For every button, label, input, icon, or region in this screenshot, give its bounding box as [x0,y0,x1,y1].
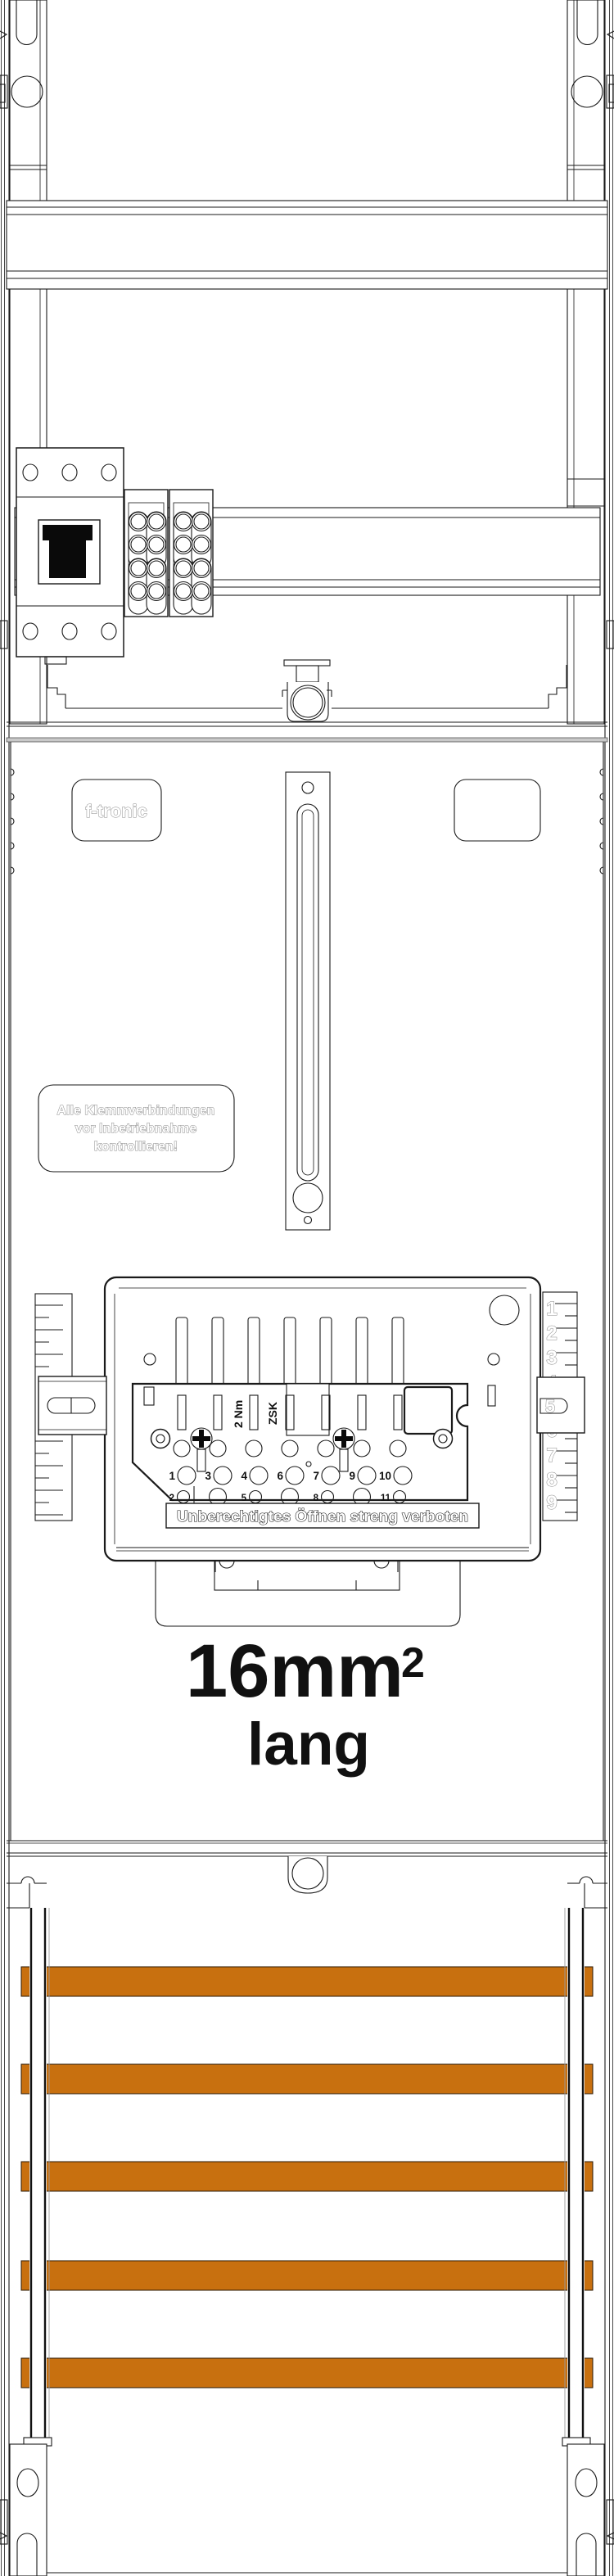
svg-text:7: 7 [313,1470,319,1482]
size-main-text: 16mm [186,1629,404,1713]
svg-text:3: 3 [205,1470,211,1482]
svg-text:8: 8 [314,1494,319,1503]
hanger-stud [284,660,330,666]
breaker-handle-icon [43,525,93,578]
center-window [287,1384,329,1435]
empty-badge [454,780,540,841]
svg-text:5: 5 [242,1494,247,1503]
svg-text:10: 10 [379,1470,391,1482]
right-divider-bracket [567,1877,607,1908]
bottom-divider [7,1841,607,1908]
terminal-block-left [124,490,168,617]
meter-cabinet-diagram: f-tronic Alle Klemmverbindungen vor Inbe… [0,0,614,2576]
bracket-number: 5 [545,1396,555,1417]
brand-logo: f-tronic [85,801,147,821]
seal-notice-text: Unberechtigtes Öffnen streng verboten [177,1508,468,1525]
left-din-bracket [38,1376,106,1435]
top-section-bottom-tray [7,660,607,742]
side-box [404,1387,452,1434]
mount-screw-icon [434,1430,453,1448]
busbar-3 [21,2162,593,2191]
top-right-mounting-rail [566,0,606,724]
warning-line-3: kontrollieren! [94,1140,178,1154]
middle-panel: f-tronic Alle Klemmverbindungen vor Inbe… [11,742,603,1841]
right-outer-edge-strip [605,0,614,2576]
busbar-field [21,1967,593,2388]
left-divider-bracket [7,1877,47,1908]
busbar-2 [21,2064,593,2094]
size-caption: 16mm 2 lang [186,1629,425,1778]
size-sub-text: lang [247,1711,370,1778]
phillips-screw-icon [333,1428,354,1449]
svg-text:11: 11 [381,1494,391,1503]
seal-label: Unberechtigtes Öffnen streng verboten [166,1503,479,1528]
zsk-terminal-unit: 1 2 3 4 6 7 8 9 [35,1277,585,1561]
svg-text:4: 4 [241,1470,247,1482]
torque-label: 2 Nm [232,1400,245,1428]
svg-text:1: 1 [546,1298,557,1320]
left-outer-edge-strip [0,0,9,2576]
svg-text:9: 9 [546,1492,557,1514]
main-breaker [16,448,124,664]
right-din-bracket: 5 [537,1377,585,1433]
model-label: ZSK [266,1402,279,1425]
diagram-svg: f-tronic Alle Klemmverbindungen vor Inbe… [0,0,614,2576]
terminal-block-right [169,490,213,617]
breaker-foot [45,657,66,664]
central-slot-channel [286,772,330,1230]
busbar-5 [21,2358,593,2388]
svg-text:8: 8 [546,1469,557,1491]
mount-screw-icon [151,1430,170,1448]
svg-text:1: 1 [169,1470,175,1482]
warning-label: Alle Klemmverbindungen vor Inbetriebnahm… [38,1085,234,1172]
svg-text:3: 3 [546,1347,557,1369]
svg-text:7: 7 [546,1444,557,1467]
phillips-screw-icon [191,1428,212,1449]
busbar-1 [21,1967,593,1996]
svg-text:2: 2 [546,1322,557,1344]
warning-line-2: vor Inbetriebnahme [75,1122,197,1136]
svg-text:6: 6 [277,1470,283,1482]
warning-line-1: Alle Klemmverbindungen [57,1104,215,1118]
brand-badge: f-tronic [72,780,161,841]
bottom-left-mounting-rail [10,2444,47,2576]
svg-text:2: 2 [169,1494,174,1503]
size-sup-text: 2 [401,1639,425,1687]
divider-pocket [288,1856,327,1893]
svg-text:9: 9 [349,1470,355,1482]
busbar-4 [21,2261,593,2290]
knockout-hole-icon [291,685,325,720]
zsk-lower-tab [156,1561,460,1626]
bottom-right-mounting-rail [567,2444,604,2576]
din-rail-top [7,201,607,289]
